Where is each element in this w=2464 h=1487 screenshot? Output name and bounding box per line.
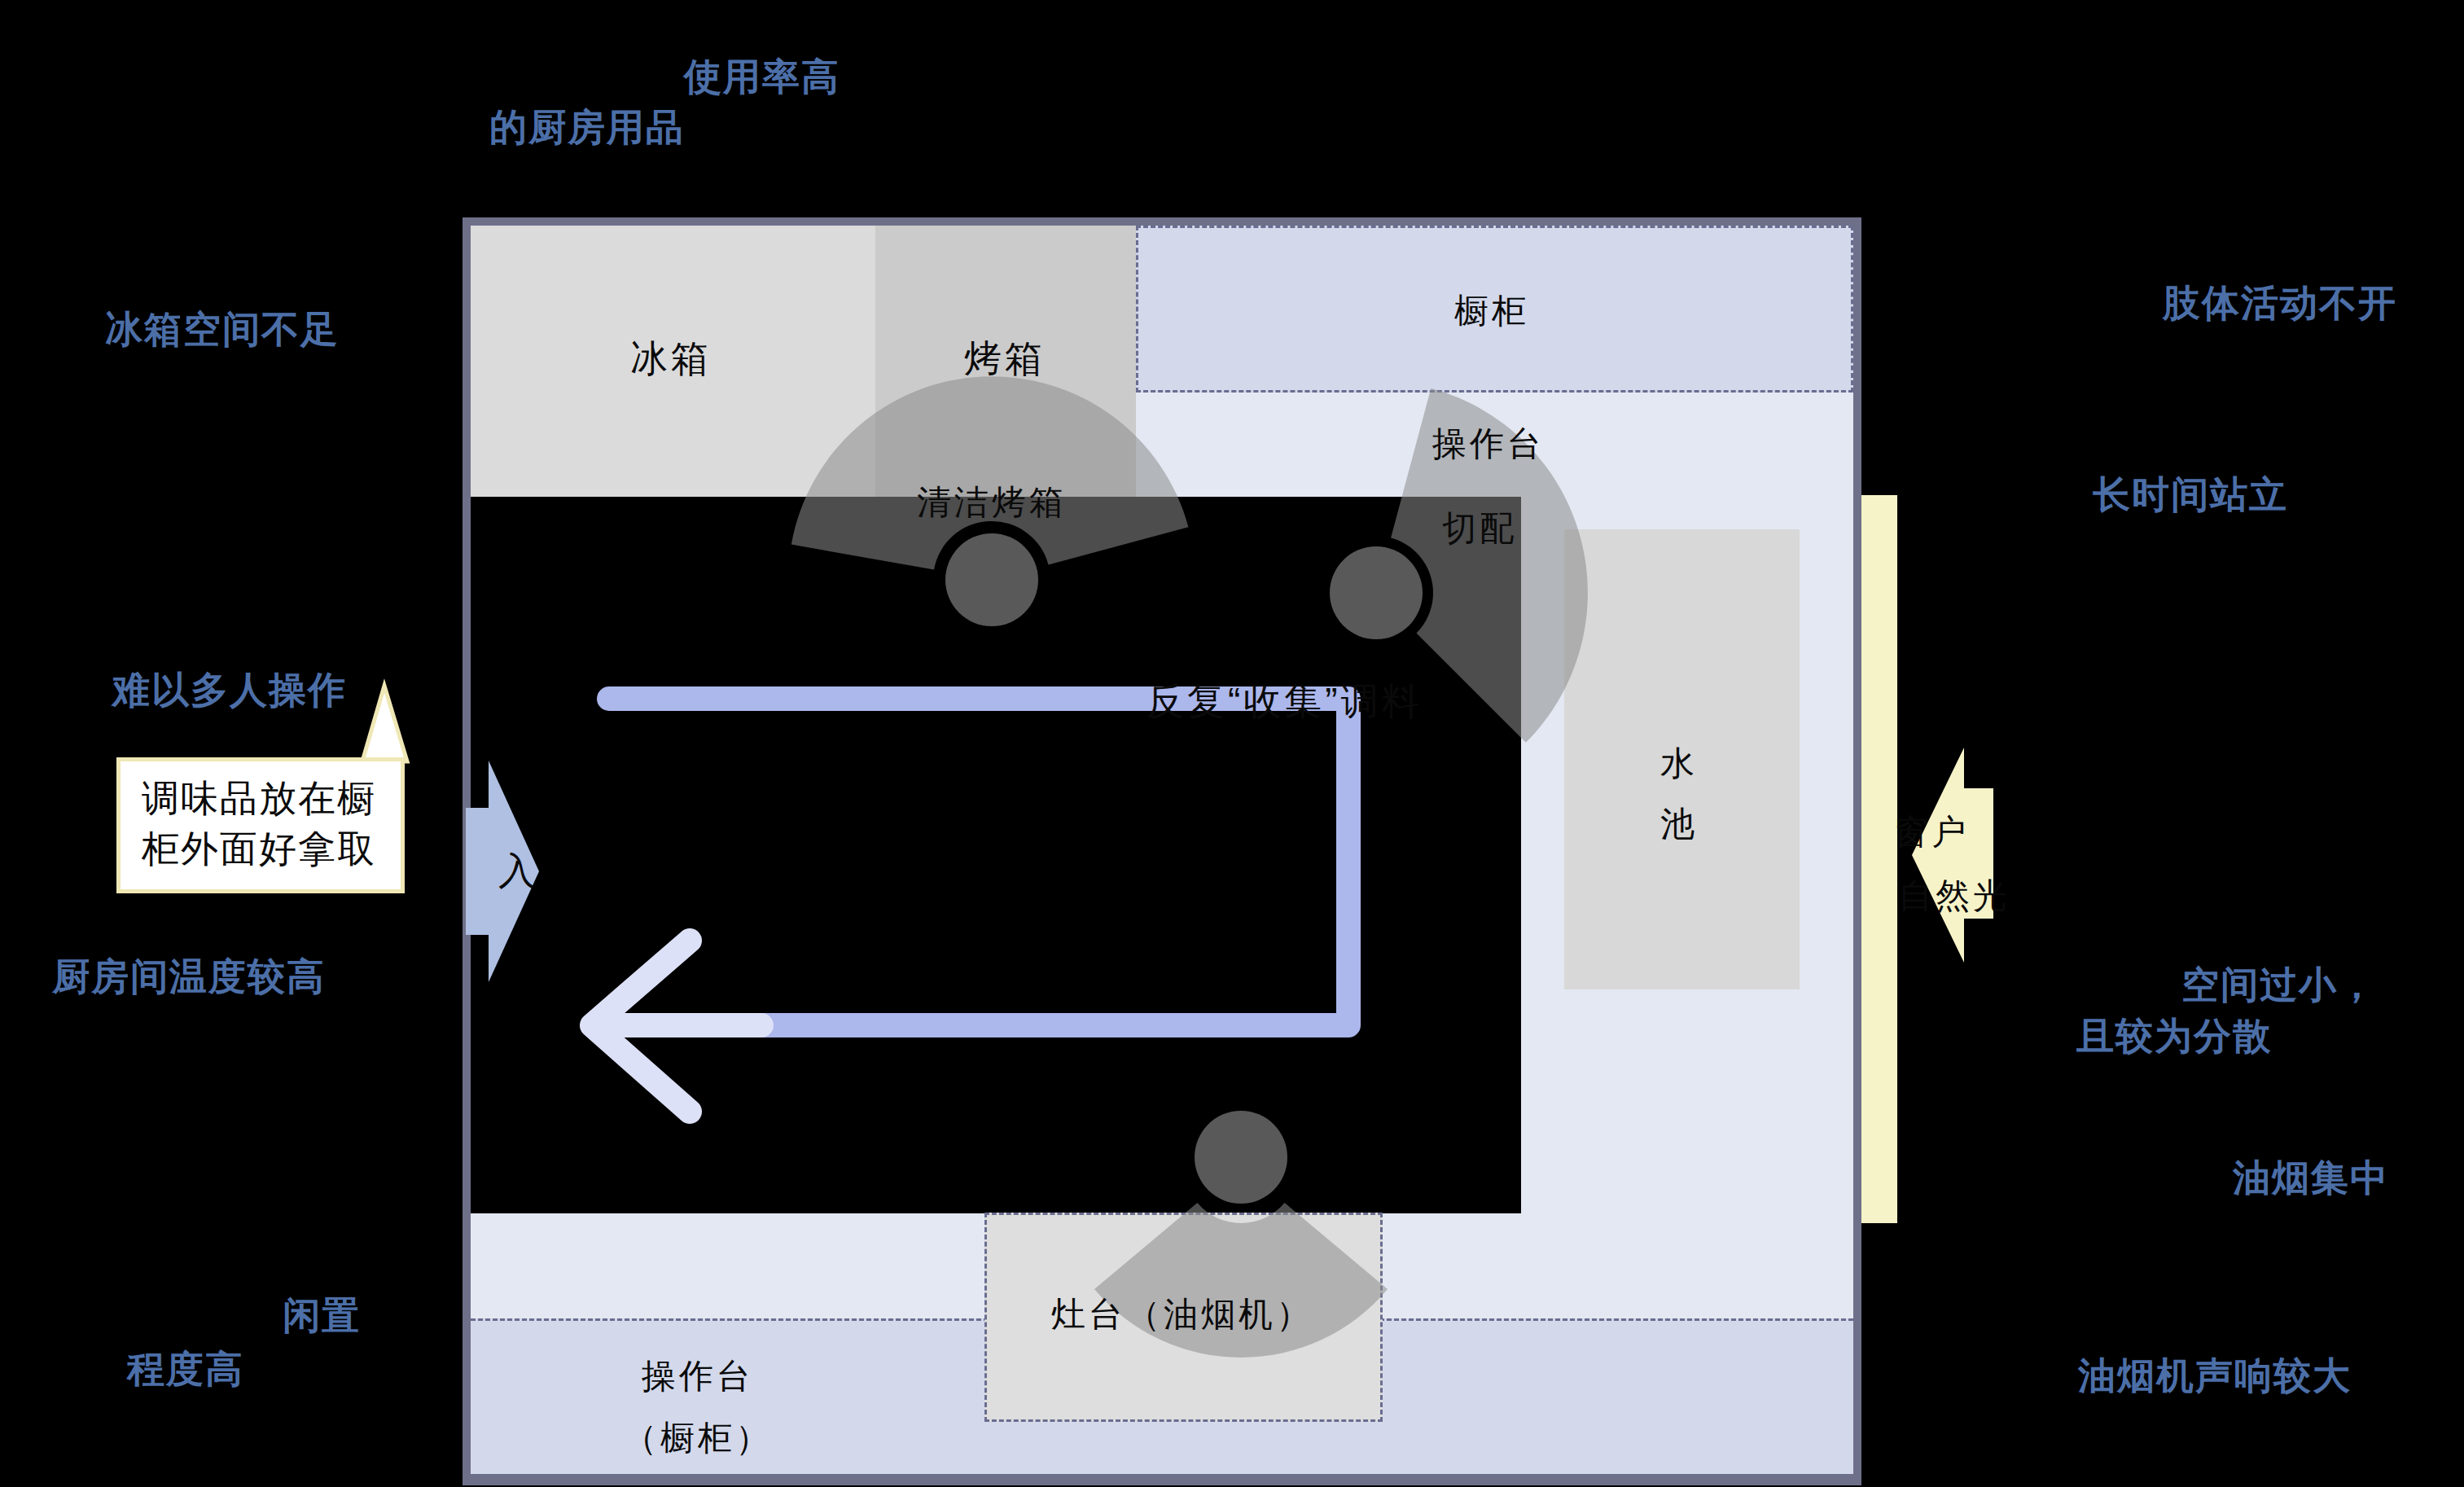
annotation-usage-line1: 使用率高 xyxy=(684,52,840,103)
annotation-body-movement: 肢体活动不开 xyxy=(2163,279,2397,329)
annotation-standing: 长时间站立 xyxy=(2093,470,2288,520)
entrance-label: 入 xyxy=(498,846,539,897)
annotation-usage-line2: 的厨房用品 xyxy=(489,103,685,153)
window-label: 窗户 xyxy=(1894,809,1969,855)
window-strip xyxy=(1861,495,1897,1223)
speech-bubble-tail xyxy=(362,686,407,761)
annotation-small-space-line2: 且较为分散 xyxy=(2076,1011,2272,1062)
kitchen-layout-diagram: 调味品放在橱 柜外面好拿取 冰箱 烤箱 橱柜 操作台 切配 清洁烤箱 水 池 灶… xyxy=(0,0,2464,1487)
natural-light-label: 自然光 xyxy=(1898,873,2010,919)
speech-bubble-line2: 柜外面好拿取 xyxy=(142,823,401,874)
clean-oven-action-label: 清洁烤箱 xyxy=(917,480,1067,525)
wall-bottom xyxy=(463,1474,1861,1485)
sink-label-line1: 水 xyxy=(1660,741,1698,787)
annotation-multi-user: 难以多人操作 xyxy=(112,665,347,716)
counter-top-label: 操作台 xyxy=(1432,421,1545,467)
sink-label-line2: 池 xyxy=(1660,801,1698,847)
annotation-fume: 油烟集中 xyxy=(2233,1153,2389,1204)
collect-seasoning-label: 反复“收集”调料 xyxy=(1147,677,1423,727)
annotation-temperature: 厨房间温度较高 xyxy=(52,952,326,1002)
annotation-small-space-line1: 空间过小， xyxy=(2181,960,2377,1011)
annotation-idle-line2: 程度高 xyxy=(127,1344,244,1395)
wall-right xyxy=(1853,217,1861,1485)
cutting-action-label: 切配 xyxy=(1442,506,1517,551)
wall-left xyxy=(463,217,471,1485)
speech-bubble-line1: 调味品放在橱 xyxy=(142,773,401,823)
bottom-counter-label-line2: （橱柜） xyxy=(623,1415,773,1461)
annotation-fridge-space: 冰箱空间不足 xyxy=(105,305,340,355)
activity-zone xyxy=(471,497,1521,1213)
annotation-hood-noise: 油烟机声响较大 xyxy=(2078,1351,2352,1401)
stove-label: 灶台（油烟机） xyxy=(1051,1292,1313,1337)
speech-bubble: 调味品放在橱 柜外面好拿取 xyxy=(116,757,405,893)
natural-light-arrow xyxy=(1912,748,1993,963)
fridge-label: 冰箱 xyxy=(630,334,712,384)
bottom-counter-label-line1: 操作台 xyxy=(642,1353,754,1399)
oven-label: 烤箱 xyxy=(964,334,1046,384)
cabinet-label: 橱柜 xyxy=(1454,288,1529,334)
annotation-idle-line1: 闲置 xyxy=(283,1291,361,1341)
wall-top xyxy=(463,217,1861,226)
